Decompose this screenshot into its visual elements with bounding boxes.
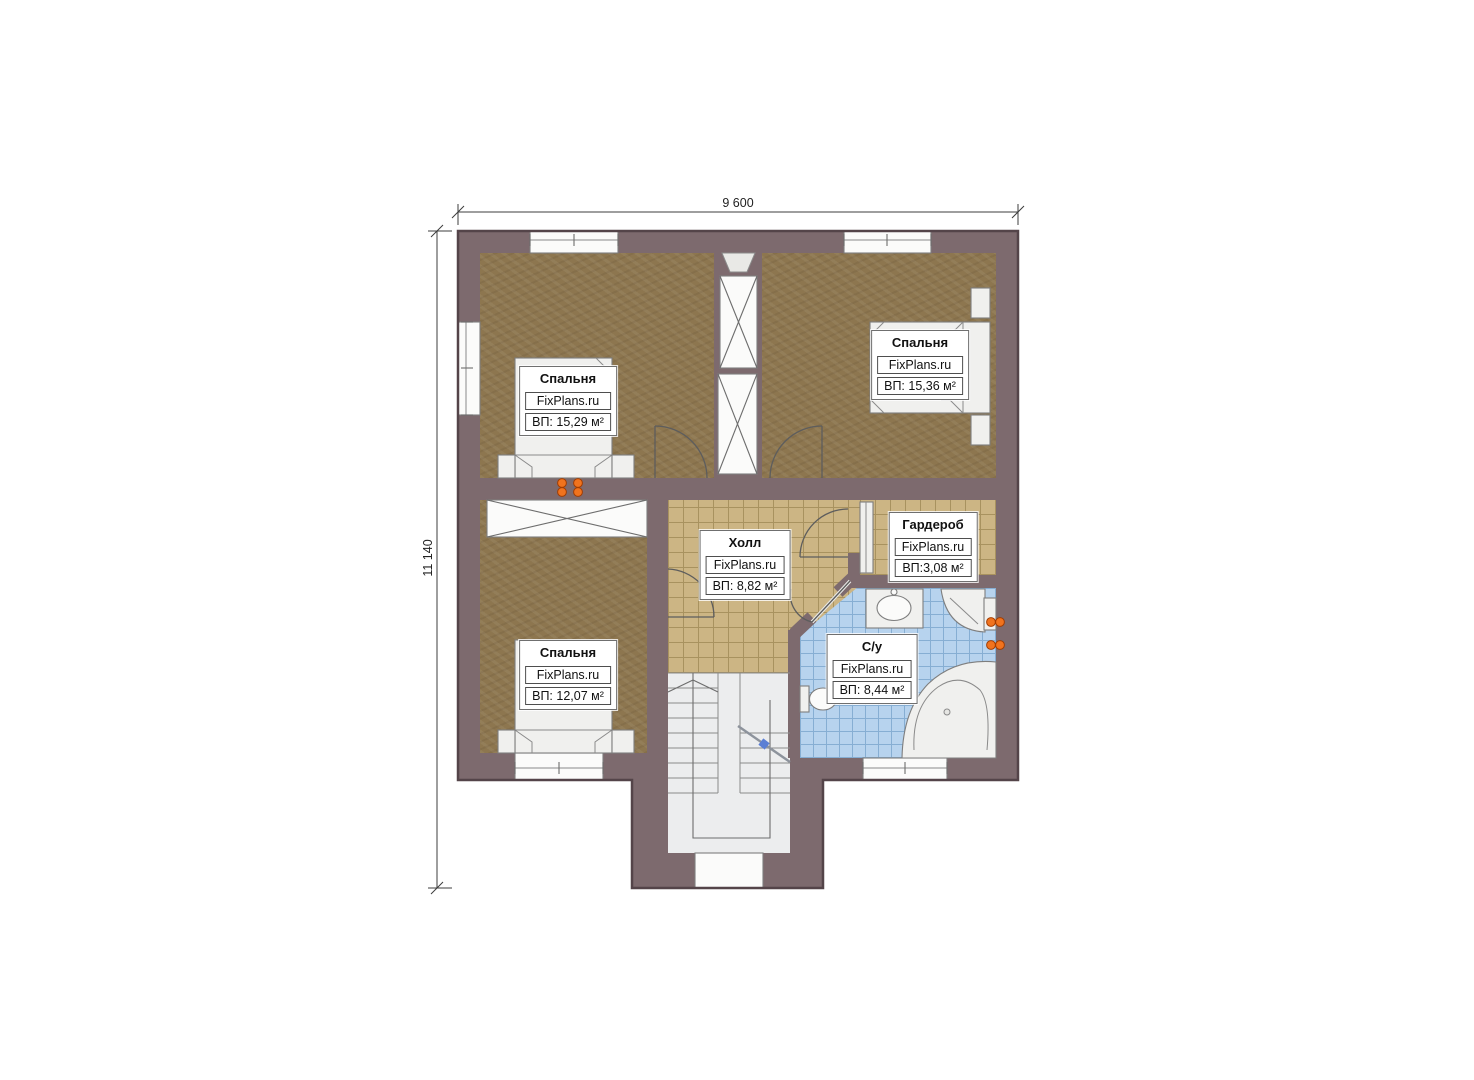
closet-crossed [487, 500, 647, 537]
room-name: Спальня [525, 644, 611, 663]
staircase [668, 673, 790, 838]
room-area: ВП: 15,36 м² [877, 377, 963, 395]
room-name: Гардероб [895, 516, 972, 535]
floor-plan-canvas: 9 600 11 140 Спальня FixPlans.ru ВП: 15,… [0, 0, 1474, 1080]
room-brand: FixPlans.ru [525, 666, 611, 684]
toilet-tank [800, 686, 809, 712]
room-brand: FixPlans.ru [706, 556, 785, 574]
room-label-bedroom-top-right: Спальня FixPlans.ru ВП: 15,36 м² [871, 330, 969, 400]
dimension-width-label: 9 600 [722, 196, 753, 210]
room-brand: FixPlans.ru [895, 538, 972, 556]
room-area: ВП: 8,82 м² [706, 577, 785, 595]
room-area: ВП: 12,07 м² [525, 687, 611, 705]
room-label-bedroom-bottom-left: Спальня FixPlans.ru ВП: 12,07 м² [519, 640, 617, 710]
room-brand: FixPlans.ru [525, 392, 611, 410]
room-label-hall: Холл FixPlans.ru ВП: 8,82 м² [700, 530, 791, 600]
room-name: Холл [706, 534, 785, 553]
room-name: Спальня [877, 334, 963, 353]
room-label-bathroom: С/у FixPlans.ru ВП: 8,44 м² [827, 634, 918, 704]
room-label-bedroom-top-left: Спальня FixPlans.ru ВП: 15,29 м² [519, 366, 617, 436]
room-name: С/у [833, 638, 912, 657]
room-area: ВП: 15,29 м² [525, 413, 611, 431]
room-label-wardrobe: Гардероб FixPlans.ru ВП:3,08 м² [889, 512, 978, 582]
room-brand: FixPlans.ru [833, 660, 912, 678]
sink-bowl [877, 596, 911, 621]
sink-tap [891, 589, 897, 595]
wardrobe-shelf [860, 502, 873, 573]
duct-shaft [718, 253, 757, 474]
room-brand: FixPlans.ru [877, 356, 963, 374]
dimension-height-label: 11 140 [421, 539, 435, 576]
room-name: Спальня [525, 370, 611, 389]
room-area: ВП:3,08 м² [895, 559, 972, 577]
room-area: ВП: 8,44 м² [833, 681, 912, 699]
